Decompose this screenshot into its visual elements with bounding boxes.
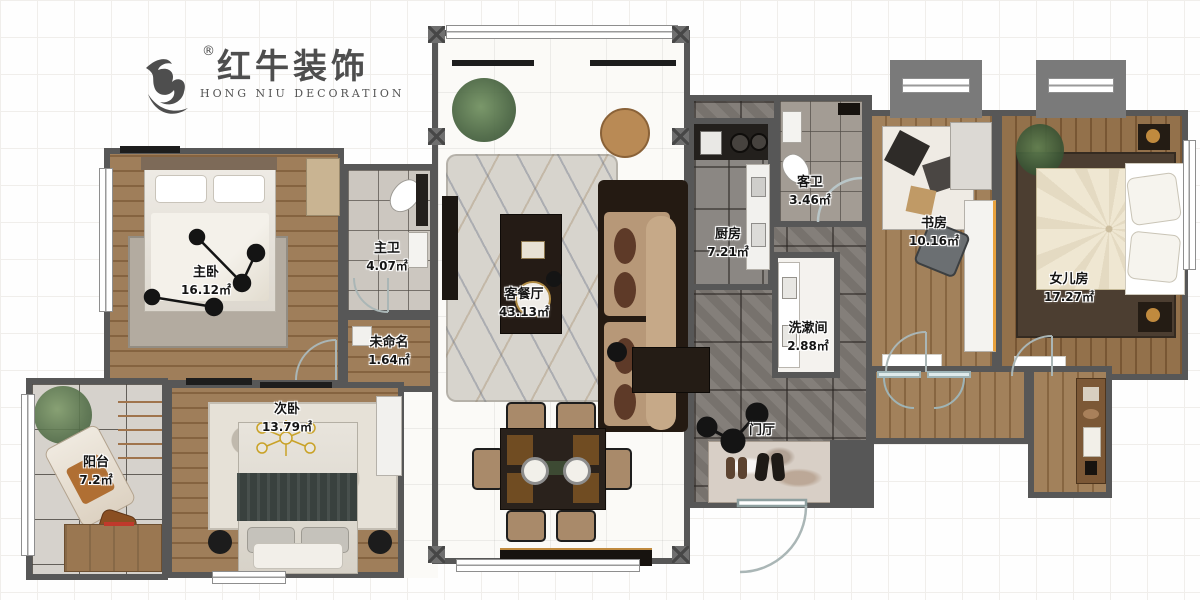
shoes [726, 457, 735, 479]
bull-icon [138, 50, 200, 120]
room-area: 7.2㎡ [79, 472, 112, 488]
room-label-guest-bath: 客卫 3.46㎡ [789, 174, 831, 208]
desk [964, 200, 997, 352]
closet-item [1083, 427, 1101, 457]
room-closet-area [1028, 366, 1112, 498]
dining-table [500, 428, 606, 510]
room-name: 门厅 [749, 422, 775, 440]
room-right-corridor [870, 366, 1030, 444]
sink [408, 232, 428, 268]
column [672, 26, 689, 43]
storage-cabinet [64, 524, 162, 572]
floorplan-canvas: ® 红牛装饰 HONG NIU DECORATION [0, 0, 1200, 600]
decor [1146, 308, 1160, 322]
window [21, 394, 35, 556]
room-area: 13.79㎡ [262, 419, 312, 435]
plate [563, 457, 591, 485]
nightstand [1138, 124, 1170, 150]
room-area: 7.21㎡ [707, 244, 749, 260]
bath-shelf [838, 103, 860, 115]
throw-blanket [237, 473, 357, 521]
wall-accent [260, 382, 332, 388]
wall-accent [186, 378, 252, 385]
sofa-small [950, 122, 992, 190]
dining-chair [506, 510, 546, 542]
room-wash [772, 252, 840, 378]
brand-text-block: ® 红牛装饰 HONG NIU DECORATION [200, 50, 405, 100]
pillow [213, 175, 265, 203]
sofa-cushion [614, 228, 636, 264]
pillow [1126, 172, 1182, 226]
room-area: 16.12㎡ [181, 282, 231, 298]
room-label-kitchen: 厨房 7.21㎡ [707, 226, 749, 260]
wardrobe [306, 158, 340, 216]
bed-headboard [141, 157, 277, 170]
column [428, 546, 445, 563]
sink [782, 277, 797, 299]
curtain [590, 60, 676, 66]
kitchen-counter [694, 124, 768, 160]
window [1183, 140, 1196, 270]
room-name: 次卧 [262, 401, 312, 419]
room-label-second-bedroom: 次卧 13.79㎡ [262, 401, 312, 435]
room-label-balcony: 阳台 7.2㎡ [79, 454, 112, 488]
sofa-back [646, 216, 676, 430]
round-chair [600, 108, 650, 158]
window [1048, 78, 1114, 93]
small-appliance [751, 177, 766, 197]
room-label-unnamed: 未命名 1.64㎡ [368, 334, 410, 368]
bed [238, 422, 358, 574]
room-label-entry-hall: 门厅 [749, 422, 775, 440]
bath-cabinet [416, 174, 428, 226]
window [212, 571, 286, 584]
nightstand [208, 530, 232, 554]
sink [700, 131, 722, 155]
nightstand [368, 530, 392, 554]
nightstand [1138, 302, 1172, 332]
room-area: 17.27㎡ [1044, 289, 1094, 305]
window [456, 559, 640, 572]
room-name: 主卧 [181, 264, 231, 282]
room-area: 43.13㎡ [499, 304, 549, 320]
room-label-study: 书房 10.16㎡ [909, 215, 959, 249]
room-daughter-bedroom [996, 110, 1188, 380]
sofa-cushion [614, 272, 636, 308]
room-name: 洗漱间 [787, 320, 829, 338]
wall-block [830, 440, 874, 508]
stove-burner [730, 133, 750, 153]
console-table [632, 347, 710, 393]
window [902, 78, 970, 93]
stove-burner [750, 133, 768, 151]
plant [452, 78, 516, 142]
room-area: 10.16㎡ [909, 233, 959, 249]
column [428, 128, 445, 145]
room-label-daughter-bedroom: 女儿房 17.27㎡ [1044, 271, 1094, 305]
pillow [155, 175, 207, 203]
wall-accent [120, 146, 180, 153]
entry-door [738, 500, 806, 572]
plate [521, 457, 549, 485]
room-name: 女儿房 [1044, 271, 1094, 289]
shoes [738, 457, 747, 479]
room-area: 1.64㎡ [368, 352, 410, 368]
room-name: 客餐厅 [499, 286, 549, 304]
tray-item [521, 241, 545, 259]
sink [782, 111, 802, 143]
brand-name: 红牛装饰 [217, 50, 369, 84]
registered-mark: ® [202, 44, 215, 59]
room-name: 主卫 [366, 240, 408, 258]
column [428, 26, 445, 43]
window [99, 168, 113, 312]
sofa [598, 180, 688, 432]
small-appliance [751, 223, 766, 247]
curtain [452, 60, 534, 66]
room-name: 阳台 [79, 454, 112, 472]
closet-item [1085, 461, 1097, 475]
room-label-master-bath: 主卫 4.07㎡ [366, 240, 408, 274]
room-area: 3.46㎡ [789, 192, 831, 208]
room-name: 未命名 [368, 334, 410, 352]
pillow [1127, 231, 1182, 284]
room-name: 厨房 [707, 226, 749, 244]
closet-item [1083, 387, 1099, 401]
pillow [253, 543, 343, 569]
room-living-dining [432, 30, 690, 564]
brand-subtitle: HONG NIU DECORATION [200, 87, 405, 100]
room-label-living-dining: 客餐厅 43.13㎡ [499, 286, 549, 320]
room-area: 4.07㎡ [366, 258, 408, 274]
room-area: 2.88㎡ [787, 338, 829, 354]
dining-chair [556, 510, 596, 542]
tv-console [442, 196, 458, 300]
brand-logo: ® 红牛装饰 HONG NIU DECORATION [138, 50, 405, 120]
wardrobe [376, 396, 402, 476]
room-name: 书房 [909, 215, 959, 233]
rug-pattern [906, 186, 937, 217]
closet [1076, 378, 1106, 484]
decor [1146, 129, 1160, 143]
room-label-wash: 洗漱间 2.88㎡ [787, 320, 829, 354]
column [672, 128, 689, 145]
room-name: 客卫 [789, 174, 831, 192]
room-label-master-bedroom: 主卧 16.12㎡ [181, 264, 231, 298]
column [672, 546, 689, 563]
closet-item [1083, 409, 1099, 419]
room-kitchen [688, 118, 774, 290]
kitchen-counter-side [746, 164, 770, 270]
window [446, 25, 678, 39]
